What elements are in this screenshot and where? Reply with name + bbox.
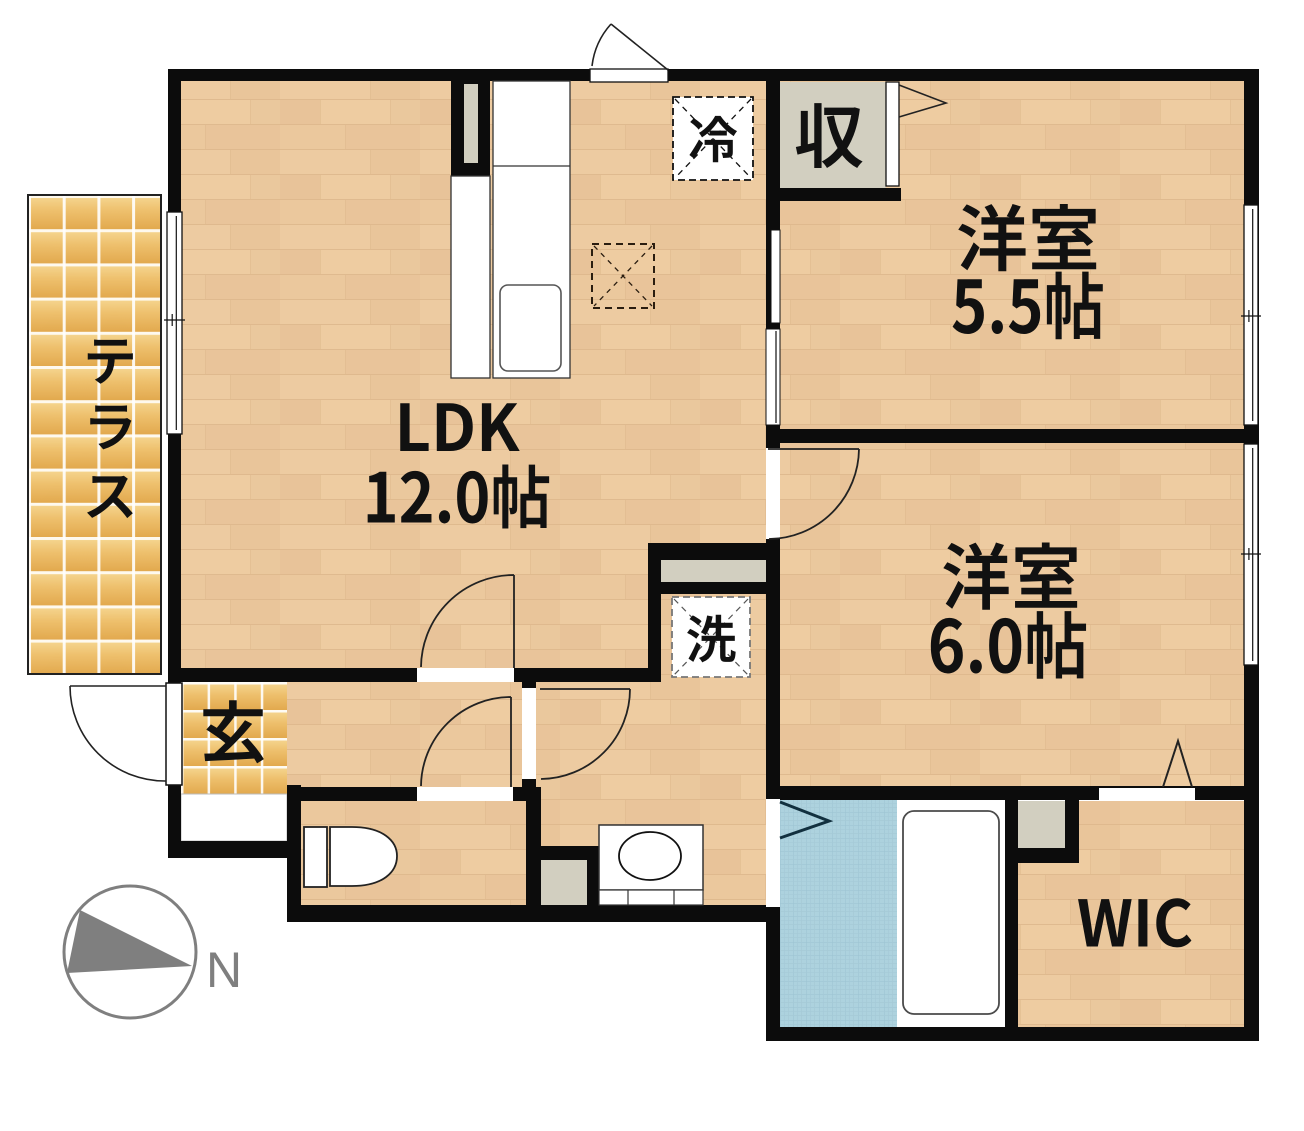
svg-text:N: N — [206, 942, 242, 998]
